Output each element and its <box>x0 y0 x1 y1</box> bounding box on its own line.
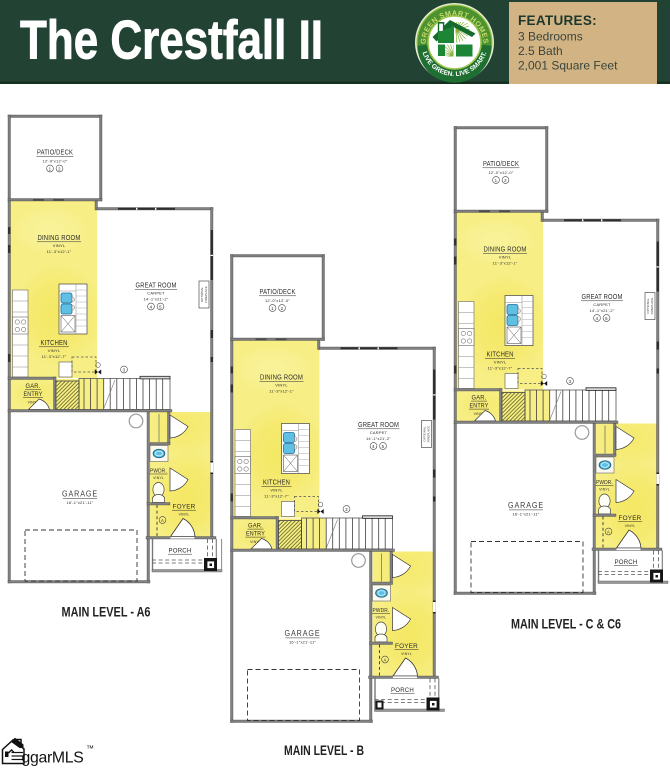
svg-text:DINING ROOM: DINING ROOM <box>38 233 81 242</box>
svg-text:™: ™ <box>86 744 94 753</box>
svg-text:VINYL: VINYL <box>153 476 164 480</box>
svg-text:GAR.: GAR. <box>248 523 263 530</box>
svg-text:GREAT ROOM: GREAT ROOM <box>358 420 399 429</box>
svg-text:14'-1"x21'-2": 14'-1"x21'-2" <box>144 297 169 302</box>
svg-text:3: 3 <box>123 367 126 372</box>
svg-text:11'-3"x12'-1": 11'-3"x12'-1" <box>269 389 294 394</box>
svg-text:1: 1 <box>49 166 52 171</box>
svg-text:FIREPLACE: FIREPLACE <box>204 286 208 303</box>
svg-text:CARPET: CARPET <box>593 302 611 307</box>
svg-text:5: 5 <box>382 444 385 449</box>
svg-text:GARAGE: GARAGE <box>508 501 544 510</box>
svg-text:FOYER: FOYER <box>395 643 418 650</box>
svg-text:GREAT ROOM: GREAT ROOM <box>136 281 177 290</box>
svg-text:FOYER: FOYER <box>619 515 642 522</box>
svg-text:1: 1 <box>495 178 498 183</box>
svg-text:2,001 Square Feet: 2,001 Square Feet <box>518 59 618 73</box>
svg-text:14'-1"x21'-2": 14'-1"x21'-2" <box>366 436 391 441</box>
svg-text:DINING ROOM: DINING ROOM <box>484 245 527 254</box>
svg-text:4: 4 <box>596 316 599 321</box>
svg-text:KITCHEN: KITCHEN <box>487 350 514 359</box>
svg-text:VINYL: VINYL <box>499 255 512 260</box>
svg-text:14'-1"x21'-2": 14'-1"x21'-2" <box>590 308 615 313</box>
svg-text:A: A <box>607 529 610 534</box>
svg-text:PORCH: PORCH <box>169 548 192 555</box>
svg-text:KITCHEN: KITCHEN <box>41 338 68 347</box>
svg-text:KITCHEN: KITCHEN <box>263 478 290 487</box>
svg-text:VINYL: VINYL <box>494 360 507 365</box>
svg-text:VINYL: VINYL <box>275 383 288 388</box>
svg-text:12'-0"x12'-0": 12'-0"x12'-0" <box>489 170 514 175</box>
svg-text:ENTRY: ENTRY <box>470 403 489 410</box>
svg-text:PWDR.: PWDR. <box>373 608 390 614</box>
svg-text:16'-1"x21'-11": 16'-1"x21'-11" <box>289 639 316 644</box>
svg-text:GARAGE: GARAGE <box>62 490 98 499</box>
svg-text:PATIO/DECK: PATIO/DECK <box>37 148 73 157</box>
svg-text:5: 5 <box>159 304 162 309</box>
svg-text:4: 4 <box>372 444 375 449</box>
svg-text:A: A <box>161 518 164 523</box>
svg-text:PORCH: PORCH <box>391 687 414 694</box>
svg-text:11'-3"x12'-7": 11'-3"x12'-7" <box>488 366 513 371</box>
svg-text:VINYL: VINYL <box>625 524 636 528</box>
svg-text:MAIN LEVEL - A6: MAIN LEVEL - A6 <box>62 605 151 620</box>
svg-text:FEATURES:: FEATURES: <box>518 13 597 28</box>
svg-text:VINYL: VINYL <box>376 616 387 620</box>
svg-text:PWDR.: PWDR. <box>150 469 167 475</box>
svg-text:3: 3 <box>569 379 572 384</box>
svg-text:2.5 Bath: 2.5 Bath <box>518 44 563 58</box>
svg-text:12'-0"x12'-0": 12'-0"x12'-0" <box>265 298 290 303</box>
svg-text:CARPET: CARPET <box>370 430 388 435</box>
svg-text:VINYL: VINYL <box>179 513 190 517</box>
svg-text:PORCH: PORCH <box>615 559 638 566</box>
svg-text:VINYL: VINYL <box>401 652 412 656</box>
svg-text:GREAT ROOM: GREAT ROOM <box>582 292 623 301</box>
svg-text:1: 1 <box>271 306 274 311</box>
svg-text:MAIN LEVEL - B: MAIN LEVEL - B <box>284 743 364 758</box>
svg-text:FIREPLACE: FIREPLACE <box>650 298 654 315</box>
svg-text:VINYL: VINYL <box>270 488 283 493</box>
svg-text:FOYER: FOYER <box>173 504 196 511</box>
svg-text:3: 3 <box>345 507 348 512</box>
svg-text:2: 2 <box>504 178 507 183</box>
svg-text:PATIO/DECK: PATIO/DECK <box>260 287 296 296</box>
svg-text:4: 4 <box>150 304 153 309</box>
svg-text:VINYL: VINYL <box>599 488 610 492</box>
svg-text:2: 2 <box>281 306 284 311</box>
svg-text:3 Bedrooms: 3 Bedrooms <box>518 30 583 44</box>
svg-text:2: 2 <box>58 166 61 171</box>
svg-text:GAR.: GAR. <box>26 383 41 390</box>
svg-text:VINYL: VINYL <box>53 243 66 248</box>
svg-text:11'-3"x12'-1": 11'-3"x12'-1" <box>47 249 72 254</box>
svg-text:DINING ROOM: DINING ROOM <box>260 373 303 382</box>
svg-text:GARAGE: GARAGE <box>285 629 321 638</box>
svg-text:A: A <box>384 657 387 662</box>
svg-text:The Crestfall II: The Crestfall II <box>20 9 323 71</box>
svg-text:5: 5 <box>605 316 608 321</box>
svg-text:MAIN LEVEL - C & C6: MAIN LEVEL - C & C6 <box>511 617 621 632</box>
svg-text:PWDR.: PWDR. <box>596 480 613 486</box>
svg-text:16'-1"x21'-11": 16'-1"x21'-11" <box>512 511 539 516</box>
svg-text:FIREPLACE: FIREPLACE <box>426 426 430 443</box>
svg-text:11'-3"x12'-1": 11'-3"x12'-1" <box>493 261 518 266</box>
svg-text:16'-1"x21'-11": 16'-1"x21'-11" <box>66 500 93 505</box>
svg-text:ggarMLS: ggarMLS <box>22 750 84 767</box>
svg-text:11'-3"x12'-7": 11'-3"x12'-7" <box>42 354 67 359</box>
svg-text:12'-0"x12'-0": 12'-0"x12'-0" <box>43 159 68 164</box>
svg-text:ENTRY: ENTRY <box>24 391 43 398</box>
svg-text:PATIO/DECK: PATIO/DECK <box>483 159 519 168</box>
svg-text:GAR.: GAR. <box>472 395 487 402</box>
svg-text:VINYL: VINYL <box>48 348 61 353</box>
svg-text:CARPET: CARPET <box>147 291 165 296</box>
svg-text:11'-3"x12'-7": 11'-3"x12'-7" <box>264 494 289 499</box>
svg-text:ENTRY: ENTRY <box>246 531 265 538</box>
